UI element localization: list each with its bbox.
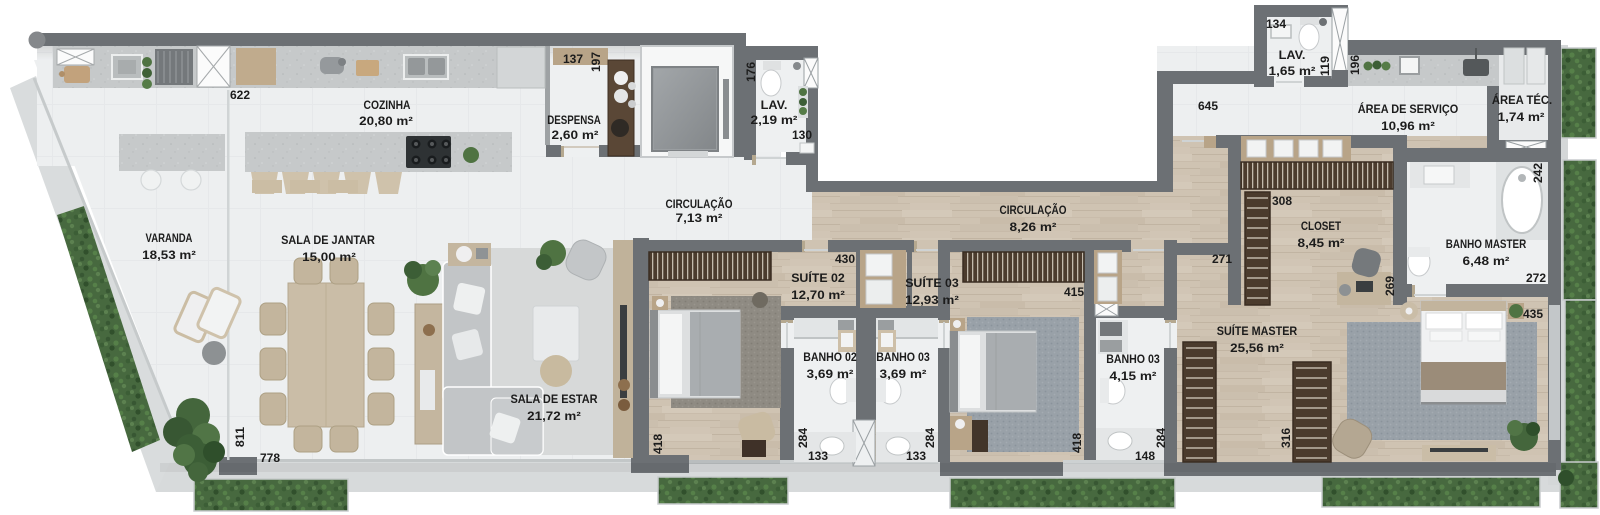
- svg-text:645: 645: [1198, 99, 1218, 113]
- svg-text:197: 197: [589, 52, 603, 72]
- svg-text:119: 119: [1318, 56, 1332, 76]
- svg-text:284: 284: [796, 428, 810, 448]
- svg-text:SUÍTE MASTER: SUÍTE MASTER: [1217, 323, 1297, 338]
- svg-text:2,60 m²: 2,60 m²: [552, 128, 599, 142]
- svg-text:137: 137: [563, 52, 583, 66]
- svg-text:130: 130: [792, 128, 812, 142]
- svg-text:3,69 m²: 3,69 m²: [807, 367, 854, 381]
- svg-text:BANHO 02: BANHO 02: [803, 350, 857, 364]
- svg-text:15,00 m²: 15,00 m²: [302, 250, 356, 264]
- svg-text:269: 269: [1383, 276, 1397, 296]
- svg-text:2,19 m²: 2,19 m²: [751, 113, 798, 127]
- svg-text:20,80 m²: 20,80 m²: [359, 114, 413, 128]
- svg-text:VARANDA: VARANDA: [146, 231, 193, 245]
- svg-text:3,69 m²: 3,69 m²: [880, 367, 927, 381]
- svg-text:SALA DE JANTAR: SALA DE JANTAR: [281, 233, 375, 247]
- svg-text:BANHO 03: BANHO 03: [1106, 352, 1160, 366]
- svg-text:7,13 m²: 7,13 m²: [676, 211, 723, 225]
- svg-text:418: 418: [651, 434, 665, 454]
- svg-text:622: 622: [230, 88, 250, 102]
- svg-text:271: 271: [1212, 252, 1232, 266]
- svg-text:242: 242: [1531, 163, 1545, 183]
- svg-text:DESPENSA: DESPENSA: [547, 113, 601, 127]
- svg-text:SUÍTE 03: SUÍTE 03: [905, 275, 959, 290]
- svg-text:1,65 m²: 1,65 m²: [1269, 64, 1316, 78]
- svg-text:308: 308: [1272, 194, 1292, 208]
- svg-text:CIRCULAÇÃO: CIRCULAÇÃO: [1000, 202, 1067, 217]
- svg-text:778: 778: [260, 451, 280, 465]
- svg-text:133: 133: [906, 449, 926, 463]
- svg-text:435: 435: [1523, 307, 1543, 321]
- svg-text:6,48 m²: 6,48 m²: [1463, 254, 1510, 268]
- svg-text:4,15 m²: 4,15 m²: [1110, 369, 1157, 383]
- svg-text:272: 272: [1526, 271, 1546, 285]
- svg-text:133: 133: [808, 449, 828, 463]
- svg-text:LAV.: LAV.: [1279, 48, 1306, 62]
- svg-text:SUÍTE 02: SUÍTE 02: [791, 270, 845, 285]
- svg-text:134: 134: [1266, 17, 1286, 31]
- svg-text:COZINHA: COZINHA: [364, 98, 411, 112]
- svg-text:BANHO 03: BANHO 03: [876, 350, 930, 364]
- svg-text:8,26 m²: 8,26 m²: [1010, 220, 1057, 234]
- svg-text:CIRCULAÇÃO: CIRCULAÇÃO: [666, 196, 733, 211]
- svg-text:BANHO MASTER: BANHO MASTER: [1446, 237, 1526, 251]
- svg-text:418: 418: [1070, 433, 1084, 453]
- svg-text:148: 148: [1135, 449, 1155, 463]
- svg-text:25,56 m²: 25,56 m²: [1230, 341, 1284, 355]
- svg-text:LAV.: LAV.: [761, 98, 788, 112]
- svg-text:284: 284: [923, 428, 937, 448]
- svg-text:12,70 m²: 12,70 m²: [791, 288, 845, 302]
- svg-text:415: 415: [1064, 285, 1084, 299]
- svg-text:ÁREA TÉC.: ÁREA TÉC.: [1492, 92, 1552, 107]
- svg-text:18,53 m²: 18,53 m²: [142, 248, 196, 262]
- svg-text:SALA DE ESTAR: SALA DE ESTAR: [510, 392, 597, 406]
- svg-text:12,93 m²: 12,93 m²: [905, 293, 959, 307]
- svg-text:284: 284: [1154, 428, 1168, 448]
- svg-text:ÁREA DE SERVIÇO: ÁREA DE SERVIÇO: [1358, 101, 1459, 116]
- svg-text:316: 316: [1279, 428, 1293, 448]
- svg-text:21,72 m²: 21,72 m²: [527, 409, 581, 423]
- svg-text:1,74 m²: 1,74 m²: [1498, 110, 1545, 124]
- svg-text:176: 176: [744, 62, 758, 82]
- svg-text:196: 196: [1348, 55, 1362, 75]
- svg-text:8,45 m²: 8,45 m²: [1298, 236, 1345, 250]
- svg-text:811: 811: [233, 427, 247, 447]
- svg-text:430: 430: [835, 252, 855, 266]
- svg-text:CLOSET: CLOSET: [1301, 219, 1342, 233]
- svg-text:10,96 m²: 10,96 m²: [1381, 119, 1435, 133]
